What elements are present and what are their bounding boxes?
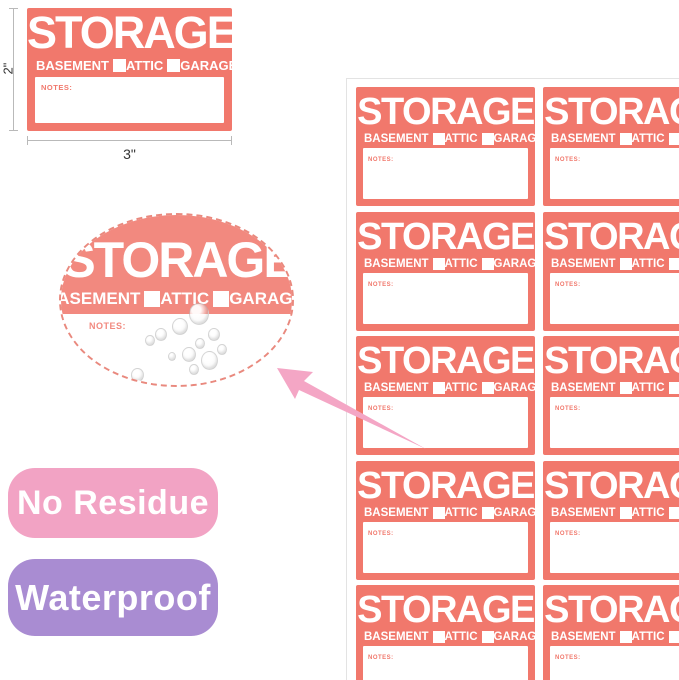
checkbox-icon <box>669 631 679 643</box>
waterproof-badge: Waterproof <box>8 559 218 636</box>
storage-label-sample: STORAGE BASEMENT ATTIC GARAGE NOTES: <box>27 8 232 131</box>
label-notes-area: NOTES: <box>550 646 679 680</box>
room-attic: ATTIC <box>445 258 494 270</box>
water-droplet-icon <box>195 338 205 349</box>
checkbox-icon <box>482 507 494 519</box>
label-title: STORAGE <box>59 235 294 285</box>
room-basement: BASEMENT <box>551 382 632 394</box>
label-rooms: BASEMENT ATTIC GARAGE <box>356 631 535 643</box>
storage-label: STORAGE BASEMENT ATTIC GARAGE NOTES: <box>356 336 535 455</box>
water-droplet-icon <box>155 328 167 341</box>
storage-label: STORAGE BASEMENT ATTIC GARAGE NOTES: <box>543 212 679 331</box>
storage-label-magnified: STORAGE BASEMENT ATTIC GARAGE NOTES: <box>59 213 294 387</box>
label-title: STORAGE <box>543 93 679 131</box>
storage-label: STORAGE BASEMENT ATTIC GARAGE NOTES: <box>356 212 535 331</box>
notes-label: NOTES: <box>550 153 581 163</box>
storage-label: STORAGE BASEMENT ATTIC GARAGE NOTES: <box>543 585 679 680</box>
room-attic: ATTIC <box>632 133 679 145</box>
notes-label: NOTES: <box>59 314 126 331</box>
label-rooms: BASEMENT ATTIC GARAGE <box>27 58 232 73</box>
label-rooms: BASEMENT ATTIC GARAGE <box>543 631 679 643</box>
water-droplet-icon <box>131 368 144 382</box>
dimension-tick <box>9 8 18 9</box>
room-attic-label: ATTIC <box>632 258 665 270</box>
notes-label: NOTES: <box>363 527 394 537</box>
label-rooms: BASEMENT ATTIC GARAGE <box>356 133 535 145</box>
sheet-grid: STORAGE BASEMENT ATTIC GARAGE NOTES: STO… <box>356 87 679 680</box>
room-basement: BASEMENT <box>364 133 445 145</box>
notes-label: NOTES: <box>550 651 581 661</box>
room-basement: BASEMENT <box>551 258 632 270</box>
room-basement-label: BASEMENT <box>364 631 429 643</box>
label-notes-area: NOTES: <box>550 273 679 324</box>
checkbox-icon <box>433 133 445 145</box>
waterproof-badge-label: Waterproof <box>15 577 211 619</box>
room-basement-label: BASEMENT <box>551 258 616 270</box>
height-dimension-label: 2" <box>1 55 16 83</box>
room-basement: BASEMENT <box>59 289 160 309</box>
room-basement: BASEMENT <box>36 58 126 73</box>
checkbox-icon <box>669 507 679 519</box>
water-droplet-icon <box>189 303 209 325</box>
room-attic: ATTIC <box>445 133 494 145</box>
room-attic: ATTIC <box>445 507 494 519</box>
room-garage: GARAGE <box>229 289 294 309</box>
room-attic-label: ATTIC <box>632 507 665 519</box>
room-garage-label: GARAGE <box>494 133 544 145</box>
checkbox-icon <box>669 382 679 394</box>
water-droplet-icon <box>201 351 218 370</box>
room-basement-label: BASEMENT <box>364 507 429 519</box>
zoom-detail-oval: STORAGE BASEMENT ATTIC GARAGE NOTES: <box>59 213 294 387</box>
label-title: STORAGE <box>27 10 232 55</box>
label-notes-area: NOTES: <box>363 148 528 199</box>
storage-label: STORAGE BASEMENT ATTIC GARAGE NOTES: <box>543 87 679 206</box>
room-garage-label: GARAGE <box>180 58 237 73</box>
water-droplet-icon <box>172 318 188 335</box>
room-basement: BASEMENT <box>364 507 445 519</box>
checkbox-icon <box>620 382 632 394</box>
checkbox-icon <box>213 291 229 307</box>
label-notes-area: NOTES: <box>363 397 528 448</box>
label-notes-area: NOTES: <box>363 522 528 573</box>
checkbox-icon <box>620 507 632 519</box>
room-basement: BASEMENT <box>551 507 632 519</box>
storage-labels-product-image: STORAGE BASEMENT ATTIC GARAGE NOTES: 2" … <box>0 0 679 680</box>
notes-label: NOTES: <box>363 651 394 661</box>
label-rooms: BASEMENT ATTIC GARAGE <box>356 258 535 270</box>
label-title: STORAGE <box>356 342 535 380</box>
label-title: STORAGE <box>543 591 679 629</box>
water-droplet-icon <box>208 328 220 341</box>
label-rooms: BASEMENT ATTIC GARAGE <box>543 133 679 145</box>
room-garage-label: GARAGE <box>494 631 544 643</box>
label-title: STORAGE <box>356 93 535 131</box>
label-notes-area: NOTES: <box>550 522 679 573</box>
label-rooms: BASEMENT ATTIC GARAGE <box>356 507 535 519</box>
checkbox-icon <box>433 631 445 643</box>
label-notes-area: NOTES: <box>35 77 224 123</box>
label-title: STORAGE <box>543 342 679 380</box>
notes-label: NOTES: <box>363 153 394 163</box>
label-title: STORAGE <box>356 467 535 505</box>
room-attic-label: ATTIC <box>632 631 665 643</box>
room-basement-label: BASEMENT <box>551 631 616 643</box>
room-garage-label: GARAGE <box>229 289 294 309</box>
label-notes-area: NOTES: <box>550 148 679 199</box>
checkbox-icon <box>241 59 254 72</box>
notes-label: NOTES: <box>35 78 72 92</box>
room-attic: ATTIC <box>445 382 494 394</box>
label-notes-area: NOTES: <box>363 273 528 324</box>
checkbox-icon <box>433 258 445 270</box>
checkbox-icon <box>482 133 494 145</box>
label-rooms: BASEMENT ATTIC GARAGE <box>59 289 294 309</box>
notes-label: NOTES: <box>363 402 394 412</box>
notes-label: NOTES: <box>550 402 581 412</box>
room-garage-label: GARAGE <box>494 507 544 519</box>
room-basement: BASEMENT <box>364 258 445 270</box>
checkbox-icon <box>167 59 180 72</box>
room-garage-label: GARAGE <box>494 382 544 394</box>
room-attic-label: ATTIC <box>445 382 478 394</box>
room-basement-label: BASEMENT <box>551 133 616 145</box>
checkbox-icon <box>433 507 445 519</box>
checkbox-icon <box>620 258 632 270</box>
room-basement: BASEMENT <box>551 133 632 145</box>
water-droplet-icon <box>168 352 176 361</box>
label-notes-area: NOTES: <box>363 646 528 680</box>
checkbox-icon <box>482 258 494 270</box>
room-attic: ATTIC <box>445 631 494 643</box>
label-sheet: STORAGE BASEMENT ATTIC GARAGE NOTES: STO… <box>346 78 679 680</box>
room-attic-label: ATTIC <box>445 507 478 519</box>
checkbox-icon <box>482 382 494 394</box>
label-title: STORAGE <box>543 467 679 505</box>
storage-label: STORAGE BASEMENT ATTIC GARAGE NOTES: <box>543 461 679 580</box>
storage-label: STORAGE BASEMENT ATTIC GARAGE NOTES: <box>356 461 535 580</box>
room-attic: ATTIC <box>632 631 679 643</box>
water-droplet-icon <box>145 335 155 346</box>
room-garage: GARAGE <box>180 58 254 73</box>
room-basement-label: BASEMENT <box>551 507 616 519</box>
checkbox-icon <box>113 59 126 72</box>
storage-label: STORAGE BASEMENT ATTIC GARAGE NOTES: <box>543 336 679 455</box>
label-title: STORAGE <box>356 218 535 256</box>
checkbox-icon <box>144 291 160 307</box>
notes-label: NOTES: <box>363 278 394 288</box>
water-droplet-icon <box>189 364 199 375</box>
notes-label: NOTES: <box>550 527 581 537</box>
width-dimension-line <box>27 140 232 141</box>
room-attic: ATTIC <box>632 507 679 519</box>
room-basement-label: BASEMENT <box>551 382 616 394</box>
room-garage-label: GARAGE <box>494 258 544 270</box>
checkbox-icon <box>669 258 679 270</box>
room-attic-label: ATTIC <box>126 58 163 73</box>
label-rooms: BASEMENT ATTIC GARAGE <box>543 382 679 394</box>
width-dimension-label: 3" <box>27 146 232 162</box>
checkbox-icon <box>620 631 632 643</box>
label-rooms: BASEMENT ATTIC GARAGE <box>356 382 535 394</box>
label-notes-area: NOTES: <box>550 397 679 448</box>
room-attic: ATTIC <box>632 258 679 270</box>
room-attic: ATTIC <box>126 58 180 73</box>
room-basement-label: BASEMENT <box>364 258 429 270</box>
room-basement: BASEMENT <box>364 631 445 643</box>
room-basement: BASEMENT <box>551 631 632 643</box>
label-title: STORAGE <box>356 591 535 629</box>
room-attic-label: ATTIC <box>632 382 665 394</box>
storage-label: STORAGE BASEMENT ATTIC GARAGE NOTES: <box>356 87 535 206</box>
room-attic-label: ATTIC <box>445 133 478 145</box>
notes-label: NOTES: <box>550 278 581 288</box>
water-droplet-icon <box>217 344 227 355</box>
room-attic-label: ATTIC <box>632 133 665 145</box>
dimension-tick <box>9 130 18 131</box>
checkbox-icon <box>433 382 445 394</box>
room-attic: ATTIC <box>632 382 679 394</box>
no-residue-badge: No Residue <box>8 468 218 538</box>
checkbox-icon <box>669 133 679 145</box>
room-basement-label: BASEMENT <box>59 289 140 309</box>
room-attic-label: ATTIC <box>445 258 478 270</box>
no-residue-badge-label: No Residue <box>17 484 209 523</box>
room-basement-label: BASEMENT <box>364 133 429 145</box>
checkbox-icon <box>482 631 494 643</box>
label-rooms: BASEMENT ATTIC GARAGE <box>543 258 679 270</box>
dimension-tick <box>231 136 232 145</box>
label-title: STORAGE <box>543 218 679 256</box>
checkbox-icon <box>620 133 632 145</box>
storage-label: STORAGE BASEMENT ATTIC GARAGE NOTES: <box>356 585 535 680</box>
room-attic-label: ATTIC <box>445 631 478 643</box>
dimension-tick <box>27 136 28 145</box>
room-basement-label: BASEMENT <box>36 58 109 73</box>
room-basement: BASEMENT <box>364 382 445 394</box>
label-rooms: BASEMENT ATTIC GARAGE <box>543 507 679 519</box>
room-basement-label: BASEMENT <box>364 382 429 394</box>
water-droplet-icon <box>182 347 196 362</box>
